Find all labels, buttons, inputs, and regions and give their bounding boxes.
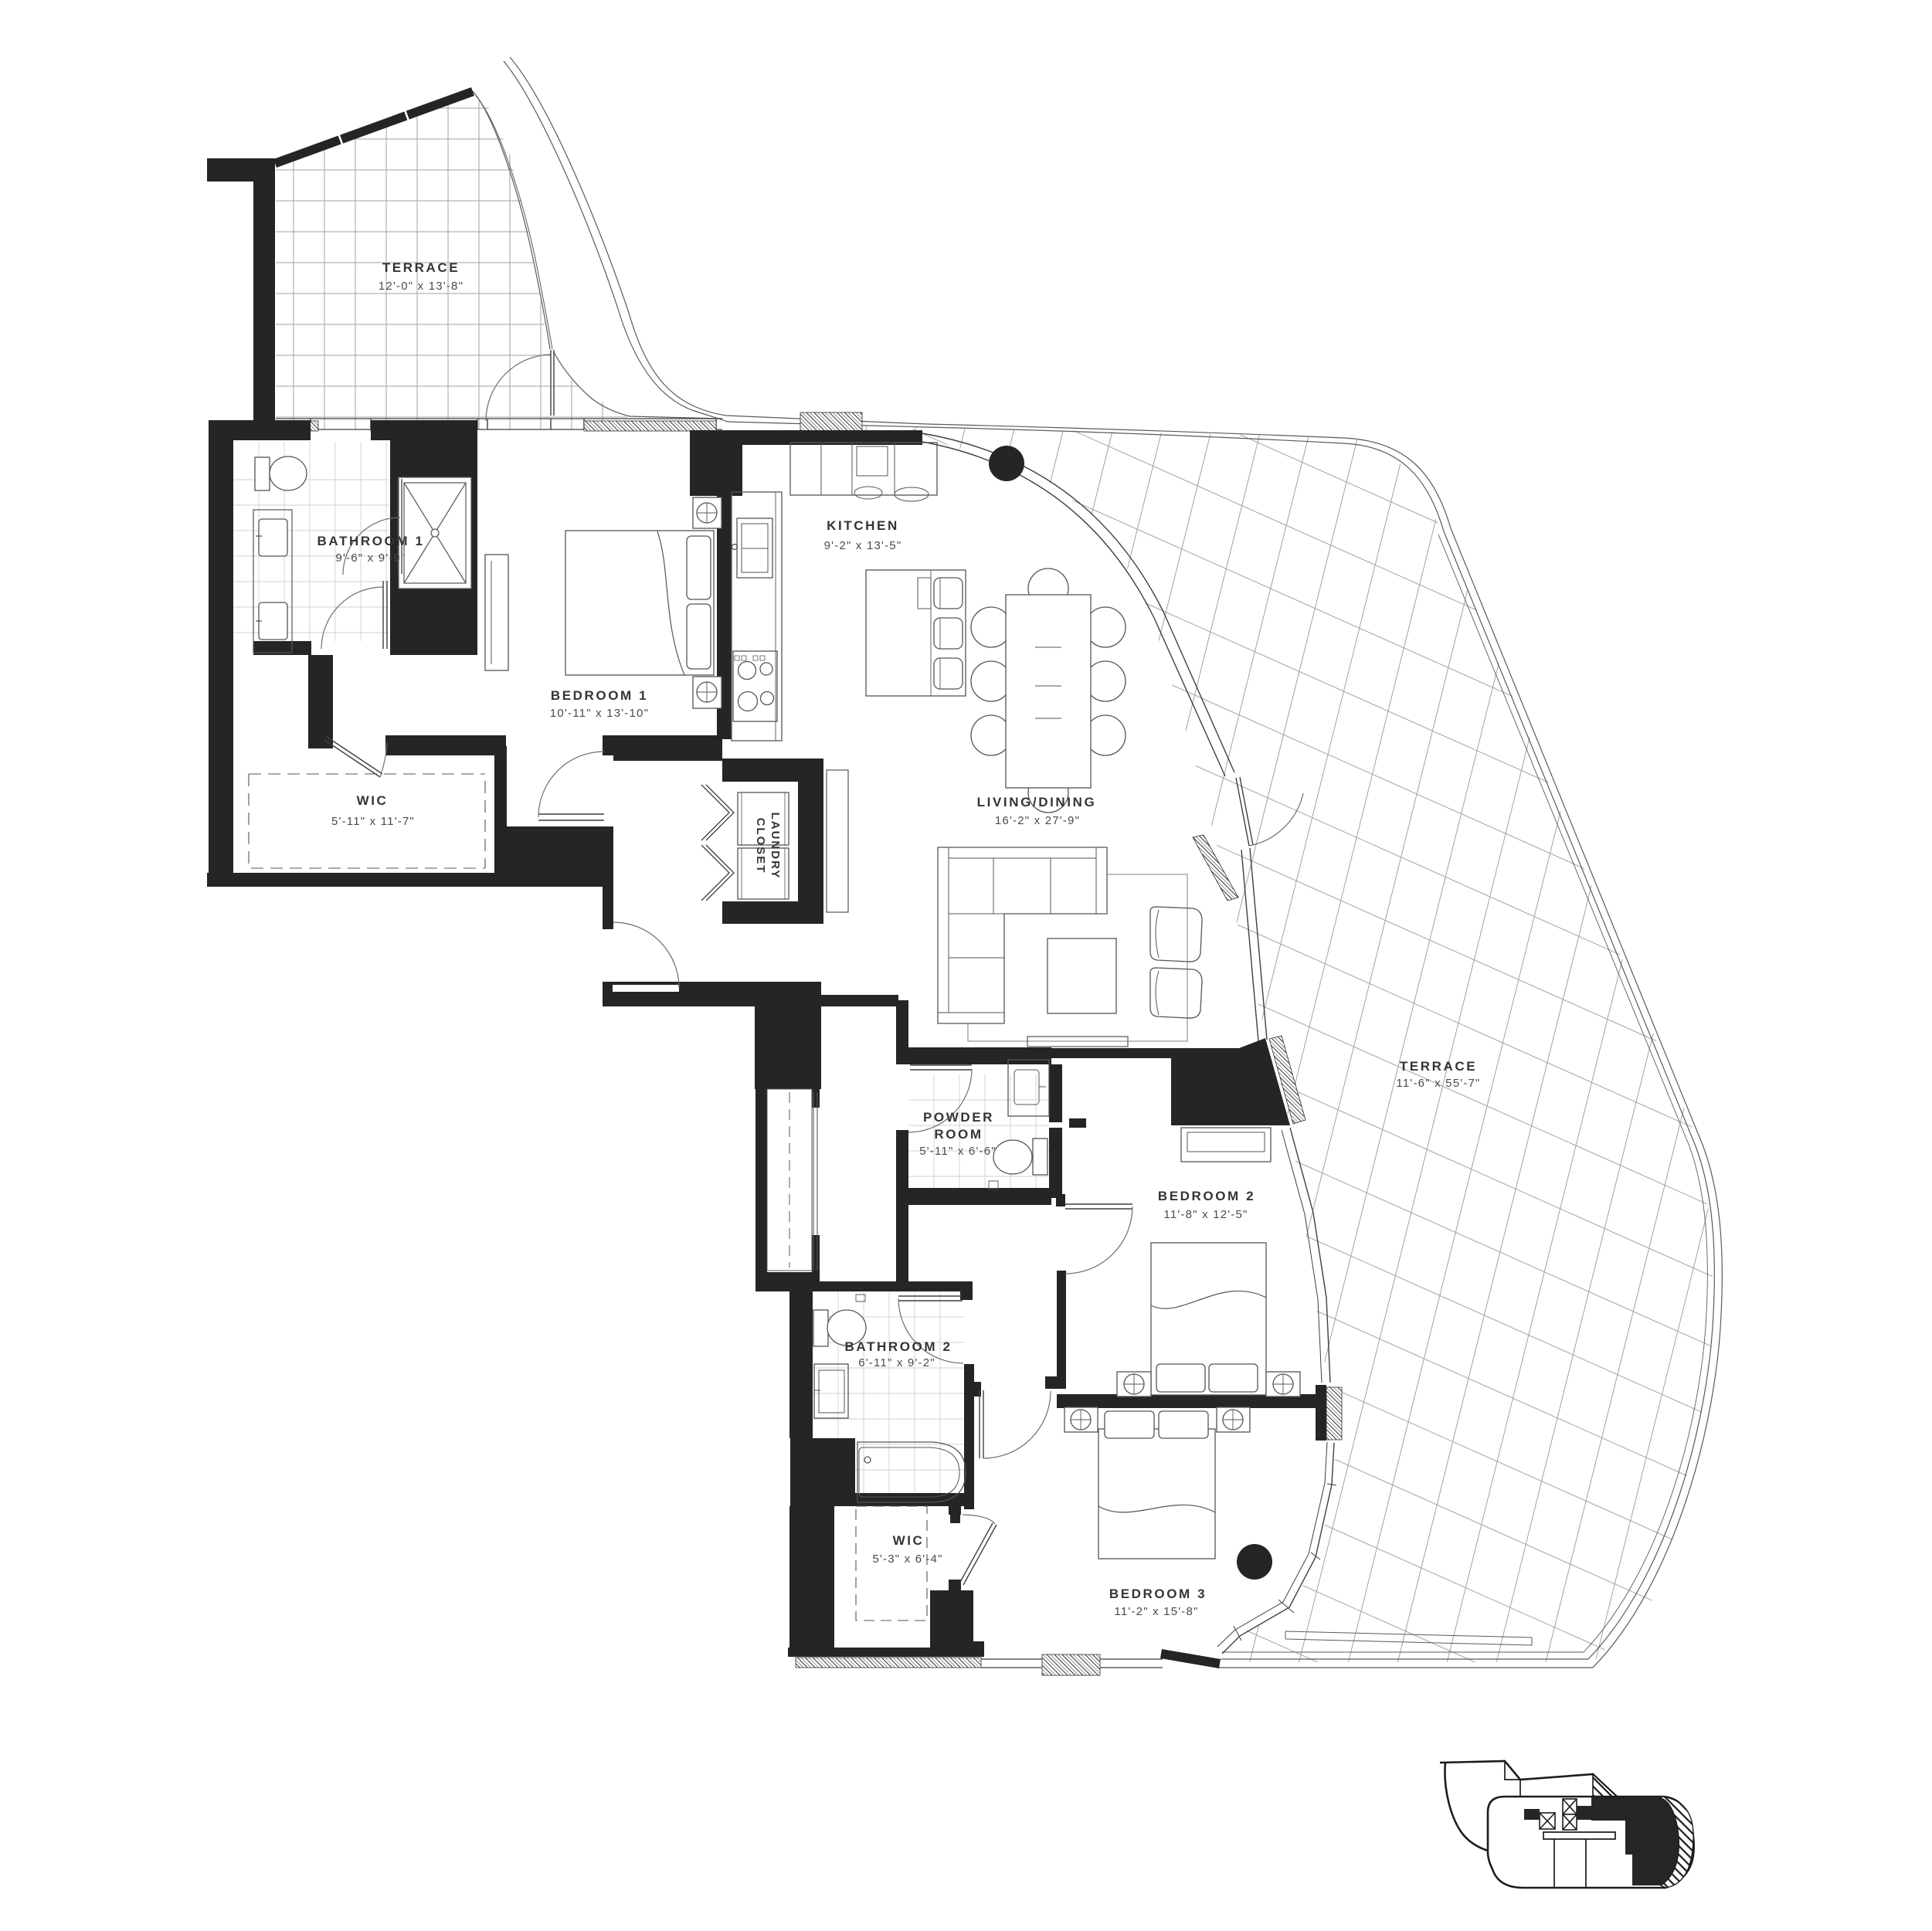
svg-text:BEDROOM 1: BEDROOM 1 [551,688,648,703]
svg-text:11'-8" x 12'-5": 11'-8" x 12'-5" [1163,1208,1248,1221]
svg-text:5'-3" x 6'-4": 5'-3" x 6'-4" [872,1553,942,1566]
svg-text:WIC: WIC [893,1533,925,1548]
svg-text:WIC: WIC [357,793,389,808]
svg-text:TERRACE: TERRACE [382,260,460,275]
svg-text:5'-11" x 11'-7": 5'-11" x 11'-7" [331,815,415,828]
svg-text:12'-0" x 13'-8": 12'-0" x 13'-8" [379,280,463,293]
svg-text:16'-2" x 27'-9": 16'-2" x 27'-9" [995,814,1080,827]
svg-text:11'-6" x 55'-7": 11'-6" x 55'-7" [1396,1077,1480,1090]
svg-text:LIVING/DINING: LIVING/DINING [977,795,1097,809]
svg-text:BEDROOM 3: BEDROOM 3 [1109,1587,1207,1601]
svg-text:KITCHEN: KITCHEN [827,518,899,533]
svg-text:BEDROOM 2: BEDROOM 2 [1158,1189,1255,1203]
svg-text:5'-11" x 6'-6": 5'-11" x 6'-6" [919,1145,997,1158]
svg-text:9'-2" x 13'-5": 9'-2" x 13'-5" [824,539,902,552]
svg-text:6'-11" x 9'-2": 6'-11" x 9'-2" [858,1356,935,1369]
svg-text:LAUNDRY: LAUNDRY [769,813,782,880]
svg-text:10'-11" x 13'-10": 10'-11" x 13'-10" [550,707,649,720]
svg-text:POWDER: POWDER [923,1110,994,1125]
svg-text:TERRACE: TERRACE [1400,1059,1477,1074]
svg-text:11'-2" x 15'-8": 11'-2" x 15'-8" [1114,1605,1198,1618]
svg-text:ROOM: ROOM [934,1127,983,1142]
svg-text:BATHROOM 2: BATHROOM 2 [844,1339,952,1354]
svg-text:BATHROOM 1: BATHROOM 1 [317,534,424,548]
svg-text:CLOSET: CLOSET [754,818,767,874]
svg-text:9'-6" x 9'-9": 9'-6" x 9'-9" [335,551,406,565]
